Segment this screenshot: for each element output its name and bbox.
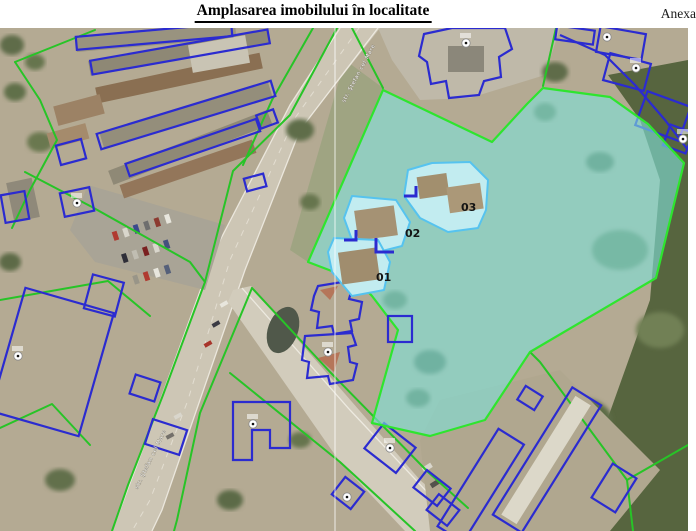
tree xyxy=(289,432,311,448)
vegetation xyxy=(636,312,684,348)
page-header: Amplasarea imobilului în localitate Anex… xyxy=(0,0,696,28)
roof xyxy=(448,46,484,72)
tree xyxy=(0,35,24,55)
page-title: Amplasarea imobilului în localitate xyxy=(195,2,432,23)
tree xyxy=(286,119,314,141)
parcel-label-02: 02 xyxy=(405,227,420,240)
cadastral-map: 01 02 03 str. Ştefan cel Mare str. Ştefa… xyxy=(0,28,688,531)
marker xyxy=(603,33,611,41)
map-canvas: 01 02 03 str. Ştefan cel Mare str. Ştefa… xyxy=(0,28,688,531)
annex-label: Anexa xyxy=(661,6,696,22)
tree xyxy=(4,83,26,101)
roof xyxy=(338,248,380,285)
parcel-label-01: 01 xyxy=(376,271,391,284)
marker xyxy=(343,493,351,501)
tree xyxy=(0,253,21,271)
roof xyxy=(354,205,398,240)
roof xyxy=(417,173,450,199)
tree xyxy=(300,194,320,210)
tree xyxy=(45,469,75,491)
parcel-label-03: 03 xyxy=(461,201,476,214)
tree xyxy=(217,490,243,510)
